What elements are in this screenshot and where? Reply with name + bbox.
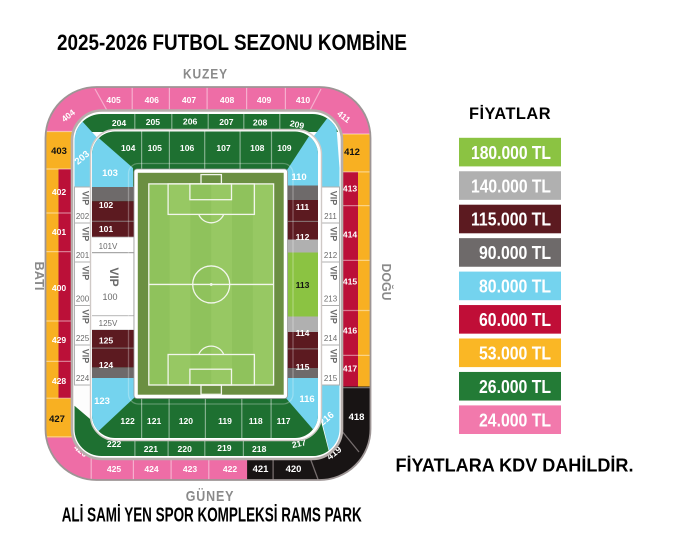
svg-text:219: 219 <box>217 443 232 453</box>
svg-text:109: 109 <box>277 143 292 153</box>
svg-text:106: 106 <box>180 143 195 153</box>
svg-text:KUZEY: KUZEY <box>183 67 228 82</box>
svg-text:413: 413 <box>343 184 358 194</box>
svg-text:DOĞU: DOĞU <box>379 264 394 301</box>
svg-text:424: 424 <box>144 464 159 474</box>
svg-text:412: 412 <box>344 147 360 158</box>
svg-text:BATI: BATI <box>32 262 46 291</box>
svg-text:220: 220 <box>178 444 193 454</box>
svg-text:417: 417 <box>343 364 358 374</box>
svg-text:121: 121 <box>147 416 162 426</box>
svg-text:ALİ SAMİ YEN SPOR KOMPLEKSİ RA: ALİ SAMİ YEN SPOR KOMPLEKSİ RAMS PARK <box>62 504 362 527</box>
svg-text:201: 201 <box>76 251 90 260</box>
svg-text:425: 425 <box>107 464 122 474</box>
svg-text:114: 114 <box>296 328 310 338</box>
svg-text:428: 428 <box>52 376 67 386</box>
svg-text:423: 423 <box>183 464 198 474</box>
svg-text:211: 211 <box>324 212 337 221</box>
svg-text:408: 408 <box>220 95 235 105</box>
svg-text:VIP: VIP <box>81 266 91 281</box>
svg-text:406: 406 <box>145 95 160 105</box>
svg-text:VIP: VIP <box>329 349 339 364</box>
svg-text:123: 123 <box>94 396 110 407</box>
svg-text:120: 120 <box>179 416 194 426</box>
svg-text:90.000 TL: 90.000 TL <box>479 242 551 263</box>
svg-text:100: 100 <box>102 292 117 302</box>
svg-text:VIP: VIP <box>107 267 121 286</box>
svg-text:110: 110 <box>291 172 306 183</box>
svg-text:206: 206 <box>183 117 198 127</box>
svg-text:116: 116 <box>299 394 314 405</box>
svg-text:429: 429 <box>52 335 67 345</box>
svg-text:103: 103 <box>102 168 118 179</box>
svg-text:421: 421 <box>253 464 270 475</box>
svg-text:VIP: VIP <box>81 349 91 364</box>
svg-text:410: 410 <box>296 95 311 105</box>
svg-text:125V: 125V <box>99 319 118 328</box>
svg-text:FİYATLAR: FİYATLAR <box>469 104 551 123</box>
svg-text:24.000 TL: 24.000 TL <box>479 409 551 430</box>
svg-text:418: 418 <box>349 412 365 423</box>
svg-text:111: 111 <box>296 202 310 212</box>
svg-text:102: 102 <box>99 200 114 210</box>
svg-text:140.000 TL: 140.000 TL <box>471 175 551 196</box>
svg-text:180.000 TL: 180.000 TL <box>471 142 551 163</box>
svg-text:200: 200 <box>76 295 90 304</box>
svg-text:208: 208 <box>253 118 268 128</box>
svg-text:403: 403 <box>51 146 67 157</box>
svg-text:101V: 101V <box>99 242 118 251</box>
svg-text:214: 214 <box>324 334 338 343</box>
svg-text:427: 427 <box>49 414 65 425</box>
svg-text:VIP: VIP <box>81 191 91 206</box>
svg-text:215: 215 <box>324 374 338 383</box>
svg-text:VIP: VIP <box>81 309 91 324</box>
svg-text:105: 105 <box>148 143 163 153</box>
svg-text:104: 104 <box>121 143 136 153</box>
svg-text:212: 212 <box>324 251 338 260</box>
svg-text:101: 101 <box>99 224 114 234</box>
svg-text:224: 224 <box>76 374 90 383</box>
svg-text:26.000 TL: 26.000 TL <box>479 376 551 397</box>
svg-text:VIP: VIP <box>329 266 339 281</box>
svg-text:218: 218 <box>252 444 267 454</box>
svg-text:80.000 TL: 80.000 TL <box>479 276 551 297</box>
svg-text:405: 405 <box>106 95 121 105</box>
svg-text:407: 407 <box>182 95 197 105</box>
svg-text:VIP: VIP <box>329 227 339 242</box>
svg-text:118: 118 <box>249 416 263 426</box>
svg-text:53.000 TL: 53.000 TL <box>479 343 551 364</box>
svg-text:122: 122 <box>120 416 135 426</box>
svg-text:113: 113 <box>296 280 310 290</box>
svg-text:115: 115 <box>296 362 310 372</box>
svg-text:VIP: VIP <box>329 309 339 324</box>
svg-text:112: 112 <box>296 232 310 242</box>
svg-text:124: 124 <box>99 360 114 370</box>
svg-text:401: 401 <box>52 227 67 237</box>
svg-text:225: 225 <box>76 334 90 343</box>
svg-text:420: 420 <box>286 464 302 475</box>
svg-text:60.000 TL: 60.000 TL <box>479 309 551 330</box>
svg-text:207: 207 <box>219 117 234 127</box>
svg-text:125: 125 <box>99 336 114 346</box>
svg-text:415: 415 <box>343 277 358 287</box>
svg-text:115.000 TL: 115.000 TL <box>471 209 551 230</box>
svg-text:204: 204 <box>112 118 127 128</box>
svg-text:409: 409 <box>257 95 272 105</box>
svg-text:416: 416 <box>343 326 358 336</box>
svg-text:2025-2026 FUTBOL SEZONU KOMBİN: 2025-2026 FUTBOL SEZONU KOMBİNE <box>57 30 407 55</box>
svg-text:FİYATLARA KDV DAHİLDİR.: FİYATLARA KDV DAHİLDİR. <box>396 456 634 476</box>
svg-text:414: 414 <box>343 230 358 240</box>
svg-text:202: 202 <box>76 212 90 221</box>
svg-text:205: 205 <box>146 117 161 127</box>
svg-text:400: 400 <box>52 283 67 293</box>
svg-text:GÜNEY: GÜNEY <box>186 488 235 505</box>
svg-text:422: 422 <box>223 464 238 474</box>
svg-text:107: 107 <box>216 143 231 153</box>
svg-text:108: 108 <box>250 143 265 153</box>
svg-text:119: 119 <box>218 416 232 426</box>
svg-text:213: 213 <box>324 295 338 304</box>
svg-text:402: 402 <box>52 187 67 197</box>
svg-text:VIP: VIP <box>329 191 339 206</box>
svg-text:117: 117 <box>277 416 291 426</box>
svg-text:VIP: VIP <box>81 227 91 242</box>
svg-text:221: 221 <box>144 444 159 454</box>
